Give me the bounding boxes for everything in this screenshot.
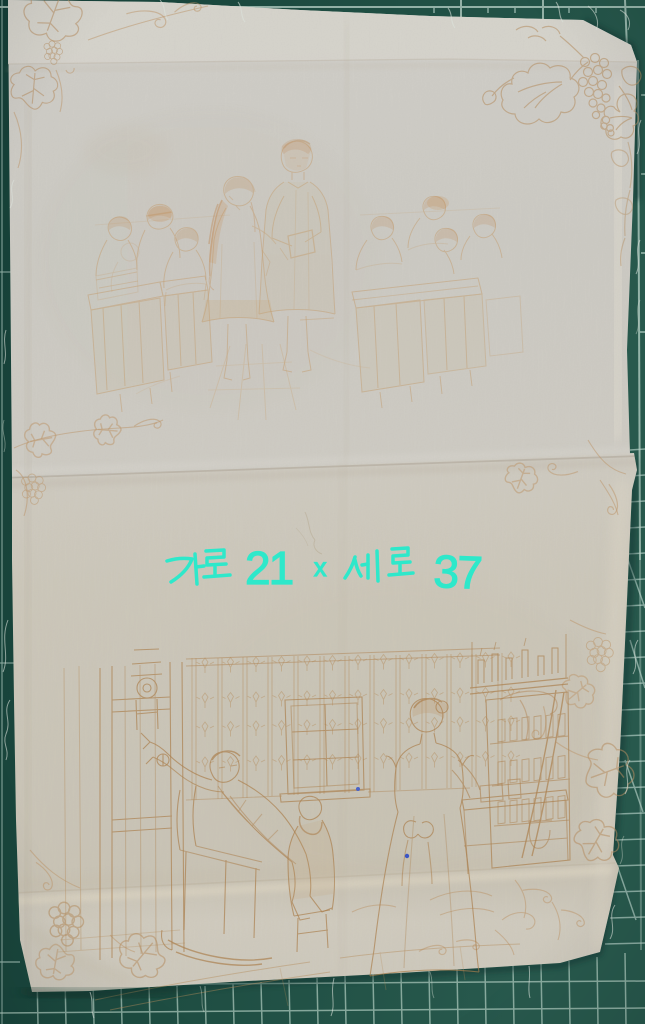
svg-text:37: 37 bbox=[433, 545, 482, 599]
svg-text:x: x bbox=[314, 554, 327, 582]
svg-text:21: 21 bbox=[245, 542, 293, 594]
